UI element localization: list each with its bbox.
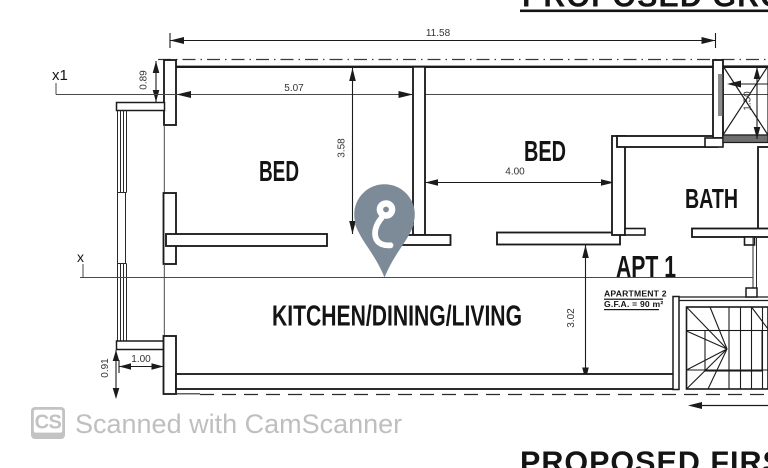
svg-text:PROPOSED FIRST FLO: PROPOSED FIRST FLO <box>520 446 768 468</box>
svg-text:3.02: 3.02 <box>566 308 577 328</box>
svg-text:Scanned with CamScanner: Scanned with CamScanner <box>75 409 402 439</box>
svg-text:BED: BED <box>524 136 566 168</box>
svg-text:4.00: 4.00 <box>505 167 525 178</box>
svg-text:0.89: 0.89 <box>139 70 150 90</box>
svg-text:1.00: 1.00 <box>131 354 151 365</box>
svg-text:5.07: 5.07 <box>284 83 304 94</box>
svg-text:G.F.A. = 90 m²: G.F.A. = 90 m² <box>604 299 663 309</box>
svg-text:APT 1: APT 1 <box>616 249 676 284</box>
svg-text:1.50: 1.50 <box>743 91 754 111</box>
svg-text:3.58: 3.58 <box>337 138 348 158</box>
svg-text:KITCHEN/DINING/LIVING: KITCHEN/DINING/LIVING <box>272 301 522 333</box>
svg-text:APARTMENT 2: APARTMENT 2 <box>604 289 667 299</box>
svg-text:BED: BED <box>259 156 299 188</box>
svg-text:BATH: BATH <box>685 183 738 214</box>
svg-text:CS: CS <box>35 412 62 434</box>
svg-text:x1: x1 <box>52 67 68 84</box>
svg-text:11.58: 11.58 <box>426 28 451 39</box>
svg-text:x: x <box>77 249 84 265</box>
svg-text:0.91: 0.91 <box>100 358 111 378</box>
